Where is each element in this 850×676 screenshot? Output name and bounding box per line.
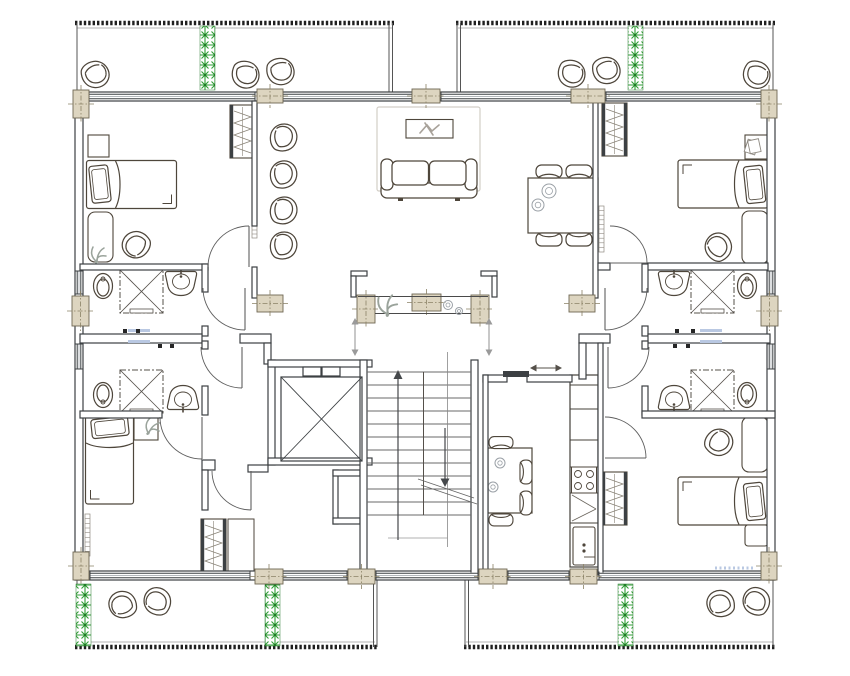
balcony-armchair (140, 584, 174, 618)
window (508, 572, 569, 580)
toilet (94, 383, 113, 408)
window (89, 93, 255, 101)
planter-strip-top-left (200, 26, 215, 90)
wall-bathL-top (80, 264, 208, 270)
living-armchair (269, 196, 298, 225)
column (407, 289, 446, 316)
dining-chair (536, 165, 562, 178)
bedside-unit (745, 525, 768, 546)
toilet (94, 274, 113, 299)
wall-bathL2-right-a (202, 341, 208, 349)
door-bedroom-bottom-left (160, 417, 202, 459)
wall-bedTR-bottom-b (647, 263, 768, 270)
wall-bedTL-right-a (252, 101, 257, 226)
bedroom-armchair (700, 228, 738, 266)
stair-break-line (421, 485, 477, 504)
planter-strip-bottom-right (618, 584, 633, 646)
bath-sink (165, 269, 196, 296)
door-bath-lower-right (608, 347, 649, 388)
bath-sink (167, 386, 198, 413)
door-bath-lower-left (201, 347, 242, 388)
bath-sink (658, 386, 689, 413)
wall-tick (170, 344, 174, 348)
wall-bedBL-top (80, 411, 162, 418)
balcony-armchair (556, 58, 588, 90)
floor-plan-page (0, 0, 850, 676)
column (565, 564, 602, 589)
column (474, 564, 512, 589)
wall-bathL-right-b (202, 326, 208, 336)
toilet (738, 383, 757, 408)
wall-shaft-bottom (333, 518, 360, 524)
wall-hallL-b (202, 470, 208, 510)
walkway-post-cap-left (351, 271, 367, 276)
window (599, 572, 766, 580)
wall-bedTR-left (593, 101, 598, 298)
shower (120, 270, 163, 313)
window (606, 93, 766, 101)
wardrobe (602, 103, 627, 156)
balcony-armchair (106, 588, 139, 621)
wall-tick (673, 344, 677, 348)
void-arrow (352, 318, 359, 356)
balcony-armchair (265, 57, 295, 87)
wall-bedTR-bottom-a (598, 263, 610, 270)
window (76, 271, 83, 294)
sink-control (582, 543, 585, 546)
door-hall-left (212, 471, 251, 510)
wall-tick (686, 344, 690, 348)
door-bath-upper-right (605, 288, 647, 330)
sink-control (582, 549, 585, 552)
living-room-sofa (381, 159, 477, 201)
column (68, 85, 94, 123)
stair-up-arrowhead (394, 370, 403, 379)
wall-tick (675, 329, 679, 333)
balcony-armchair (739, 583, 775, 618)
wall-connector-right (579, 343, 586, 379)
planter-strip-bottom-left (265, 584, 280, 646)
bath-sink (658, 269, 689, 296)
wardrobe (201, 519, 226, 572)
walkway-decor (444, 301, 453, 310)
bedroom-armchair (700, 423, 738, 461)
wall-dining-left (483, 375, 488, 575)
wall-demising-stub-cr (579, 334, 610, 343)
window (768, 344, 775, 369)
living-armchair (269, 160, 298, 189)
living-armchair (270, 124, 297, 151)
window (376, 572, 478, 580)
sliding-door (503, 371, 529, 377)
wall-tick (123, 329, 127, 333)
living-armchair (270, 232, 297, 259)
nightstand (88, 135, 109, 157)
elevator-door (303, 367, 321, 376)
shower (120, 370, 163, 413)
wall-bathR2-bottom (642, 411, 775, 418)
dining-chair (489, 514, 513, 526)
walkway-post-cap-right (481, 271, 497, 276)
wall-hallL-stub (248, 465, 268, 472)
wall-bedTL-right-b (252, 267, 257, 298)
column (250, 564, 288, 589)
window (768, 271, 775, 294)
wall-bathL2-right-b (202, 386, 208, 415)
planter-strip-bottom-far-left (76, 584, 91, 646)
dining-chair (520, 491, 532, 515)
wardrobe (230, 105, 255, 158)
dining-chair (536, 233, 562, 246)
plant-sprig (377, 293, 400, 318)
column (756, 85, 782, 123)
bed-top-right (678, 160, 768, 208)
dining-table-upper (528, 178, 598, 233)
door-bath-upper-left (203, 288, 245, 330)
corner-bench (742, 417, 768, 472)
walkway-post-right (492, 276, 497, 297)
bed-bottom-right (678, 477, 768, 525)
door-bedroom-top-left (208, 226, 249, 267)
wall-demising-stub-cl (240, 334, 271, 343)
column (343, 564, 380, 589)
corner-bench (742, 211, 768, 264)
wall-tick (691, 329, 695, 333)
wall-bathR-left-b (642, 326, 648, 336)
door-bedroom-top-right (610, 226, 647, 263)
dining-chair (566, 233, 592, 246)
stair-down-arrowhead (441, 479, 450, 488)
wall-elevator-top (268, 360, 372, 367)
planter-strip-top-right (628, 26, 643, 90)
radiator (85, 514, 90, 556)
window (90, 572, 250, 580)
stove (572, 467, 597, 493)
void-arrow (486, 318, 493, 356)
balcony-armchair (78, 57, 112, 91)
toilet (738, 274, 757, 299)
bed-top-left (87, 161, 177, 209)
window (441, 93, 571, 101)
dining-chair (566, 165, 592, 178)
floor-plan-canvas (0, 0, 850, 676)
walkway-post-left (351, 276, 356, 297)
wall-kitchen-top-b (527, 375, 572, 382)
balcony-armchair (705, 588, 737, 620)
wall-tick (158, 344, 162, 348)
wall-stair-left (360, 360, 367, 575)
wall-tick (136, 329, 140, 333)
sliding-door-arrow (530, 365, 562, 372)
wall-bathR-left-a (642, 264, 648, 292)
wall-kitchen-right (598, 343, 603, 575)
column (67, 291, 94, 331)
wall-shaft-top (333, 470, 360, 476)
wall-elevator-left (268, 360, 275, 465)
wall-bathL-right-a (202, 264, 208, 292)
door-bedroom-bottom-right (605, 417, 646, 458)
column (756, 291, 783, 331)
wall-bathR2-left-a (642, 341, 648, 349)
elevator-door (322, 367, 340, 376)
balcony-armchair (591, 55, 623, 87)
window (76, 344, 83, 369)
wall-shaft-left (333, 470, 338, 524)
tv-icon (420, 123, 439, 135)
wall-stair-right (471, 360, 478, 575)
shower (691, 270, 734, 313)
wardrobe (602, 472, 627, 525)
bed-bottom-left (86, 414, 134, 504)
window (283, 93, 412, 101)
shower (691, 370, 734, 413)
dining-chair (489, 437, 513, 449)
radiator (599, 206, 604, 252)
bedroom-armchair (117, 226, 155, 264)
column (407, 84, 445, 108)
window (283, 572, 347, 580)
balcony-armchair (230, 60, 260, 90)
dining-chair (520, 460, 532, 484)
closet-shelf (228, 519, 254, 572)
wall-hallL-a (202, 460, 215, 470)
